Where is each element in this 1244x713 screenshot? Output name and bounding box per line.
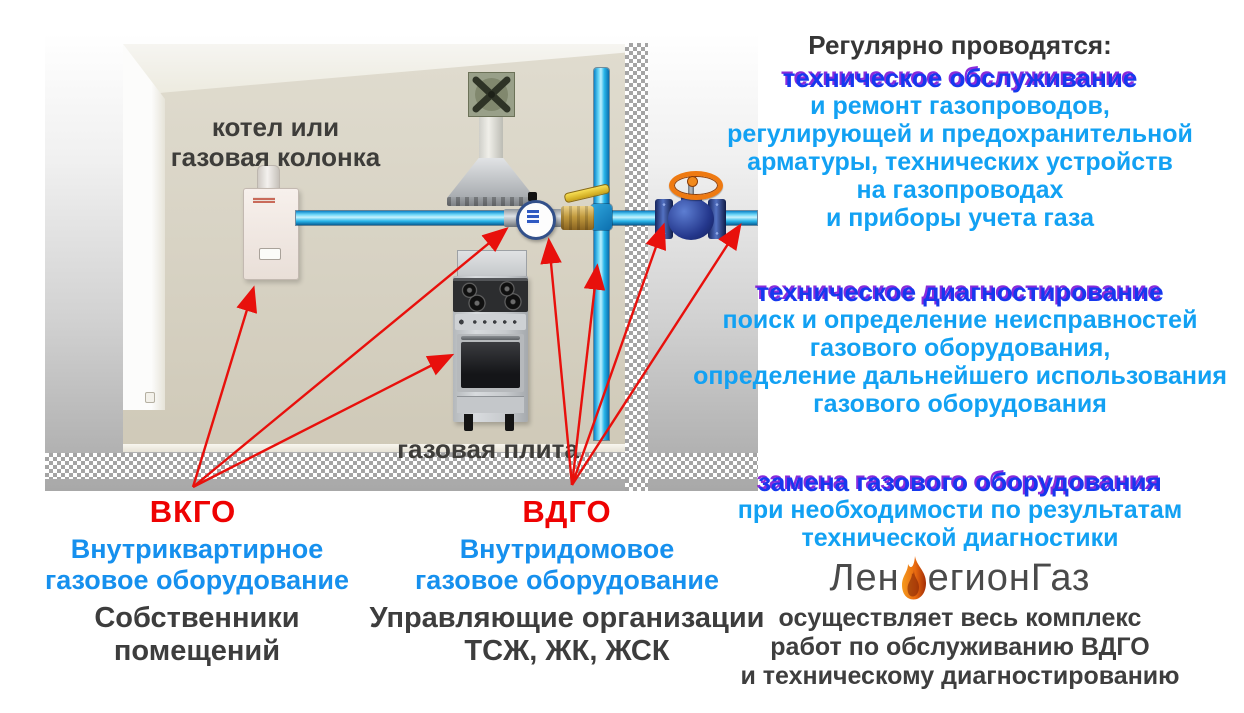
stove-drawer [457,396,524,413]
ceiling [123,44,625,98]
boiler-label-line2: газовая колонка [168,142,383,172]
logo-footer: осуществляет весь комплекс работ по обсл… [690,604,1230,691]
vdgo-abbr: ВДГО [502,494,632,530]
vkgo-title: Внутриквартирное газовое оборудование [35,534,359,596]
logo-suffix: егионГаз [928,557,1091,600]
gas-meter-dials [527,210,539,225]
pipe-tee [591,204,612,230]
ball-valve [561,206,594,230]
stove-leg [464,414,473,431]
boiler-label: котел или газовая колонка [168,112,383,172]
section-maintenance: техническое обслуживание и ремонт газопр… [690,64,1230,232]
oven-handle [461,336,520,340]
regular-works-heading: Регулярно проводятся: [690,30,1230,61]
boiler-label-line1: котел или [168,112,383,142]
logo-prefix: Лен [830,557,900,600]
section-diagnostics: техническое диагностирование поиск и опр… [690,278,1230,418]
boiler-brand-label [253,197,275,203]
vent-fan-icon [468,72,515,117]
flame-icon [901,556,927,600]
vkgo-owner: Собственники помещений [35,602,359,668]
oven-glass [461,342,520,388]
section-diagnostics-title: техническое диагностирование [690,278,1230,306]
kitchen-room [123,44,625,452]
hood-duct [479,117,503,161]
wall-checker-strip [625,43,648,491]
boiler-display [259,248,281,260]
left-wall [123,44,165,410]
gas-riser-pipe [594,68,609,440]
section-replacement-title: замена газового оборудования [690,468,1230,496]
stove-burners [453,278,528,312]
stove-label: газовая плита [393,434,583,464]
section-replacement: замена газового оборудования при необход… [690,468,1230,552]
infographic-canvas: котел или газовая колонка газовая плита … [0,0,1244,713]
lenregiongaz-logo: Лен егионГаз [690,556,1230,600]
wall-outlet [145,392,155,403]
vkgo-abbr: ВКГО [128,494,258,530]
stove-leg [505,414,514,431]
section-maintenance-title: техническое обслуживание [690,64,1230,92]
stove-knobs [455,314,526,330]
